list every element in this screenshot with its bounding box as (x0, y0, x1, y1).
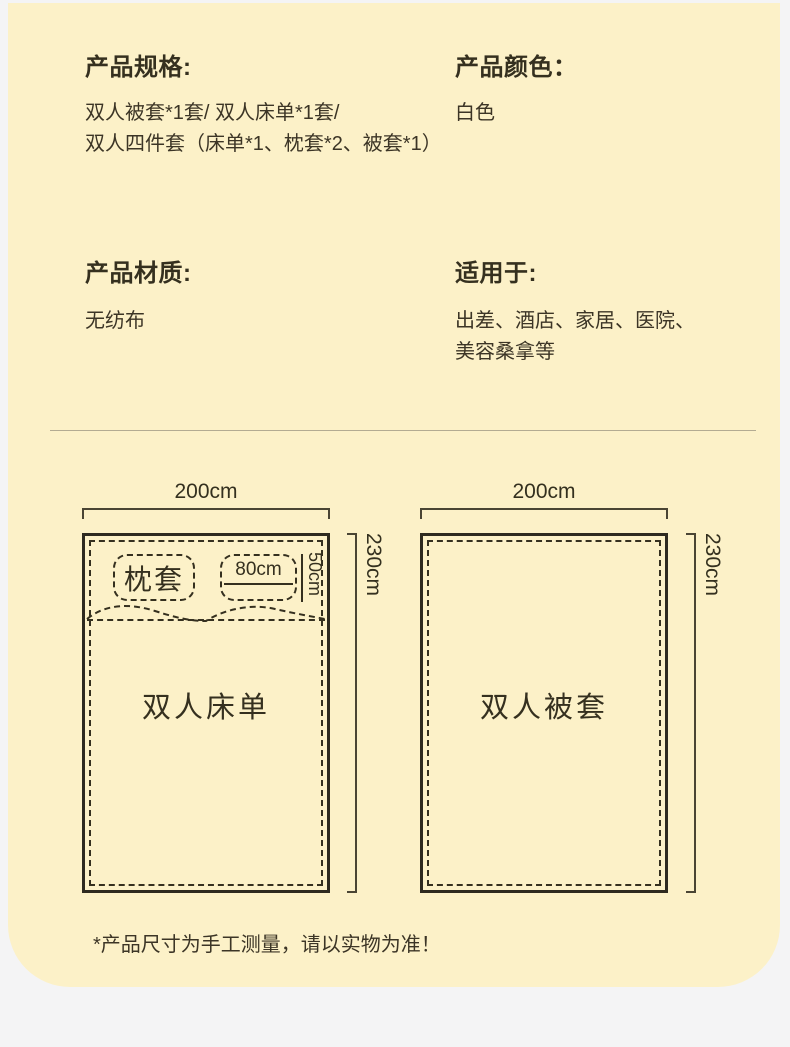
sheet-height-dimension-label: 230cm (361, 533, 385, 893)
section-divider (50, 430, 756, 431)
material-value: 无纺布 (85, 306, 145, 337)
sheet-outline: 枕套 80cm 50cm 双人床单 (82, 533, 330, 893)
duvet-diagram: 200cm 双人被套 230cm (420, 480, 730, 910)
measurement-disclaimer: *产品尺寸为手工测量，请以实物为准！ (93, 928, 441, 957)
material-section-title: 产品材质: (85, 253, 192, 288)
pillowcase-label: 枕套 (124, 558, 184, 598)
duvet-height-bracket (686, 533, 696, 893)
duvet-outline: 双人被套 (420, 533, 668, 893)
spec-line-1: 双人被套*1套/ 双人床单*1套/ (85, 98, 442, 129)
duvet-height-dimension-label: 230cm (700, 533, 724, 893)
duvet-width-dimension-label: 200cm (420, 480, 668, 504)
sheet-fold-wavy-line (85, 594, 327, 626)
color-section-title: 产品颜色： (455, 47, 578, 82)
sheet-height-bracket (347, 533, 357, 893)
usage-section-body: 出差、酒店、家居、医院、 美容桑拿等 (455, 306, 695, 368)
color-value: 白色 (455, 98, 495, 129)
sheet-width-bracket (82, 508, 330, 519)
pillow-width-dimension-line (224, 583, 293, 585)
usage-section-title: 适用于: (455, 253, 537, 288)
pillow-width-dimension-label: 80cm (222, 559, 295, 581)
usage-line-1: 出差、酒店、家居、医院、 (455, 306, 695, 337)
product-detail-page: 产品规格: 双人被套*1套/ 双人床单*1套/ 双人四件套（床单*1、枕套*2、… (0, 0, 790, 1047)
duvet-width-bracket (420, 508, 668, 519)
spec-section-title: 产品规格: (85, 47, 192, 82)
sheet-name-label: 双人床单 (85, 684, 327, 726)
sheet-fold-line (87, 619, 325, 621)
spec-card: 产品规格: 双人被套*1套/ 双人床单*1套/ 双人四件套（床单*1、枕套*2、… (8, 3, 780, 987)
spec-section-body: 双人被套*1套/ 双人床单*1套/ 双人四件套（床单*1、枕套*2、被套*1） (85, 98, 442, 160)
sheet-width-dimension-label: 200cm (82, 480, 330, 504)
duvet-name-label: 双人被套 (423, 684, 665, 726)
usage-line-2: 美容桑拿等 (455, 337, 695, 368)
spec-line-2: 双人四件套（床单*1、枕套*2、被套*1） (85, 129, 442, 160)
sheet-diagram: 200cm 枕套 80cm 50cm 双人床单 (82, 480, 392, 910)
